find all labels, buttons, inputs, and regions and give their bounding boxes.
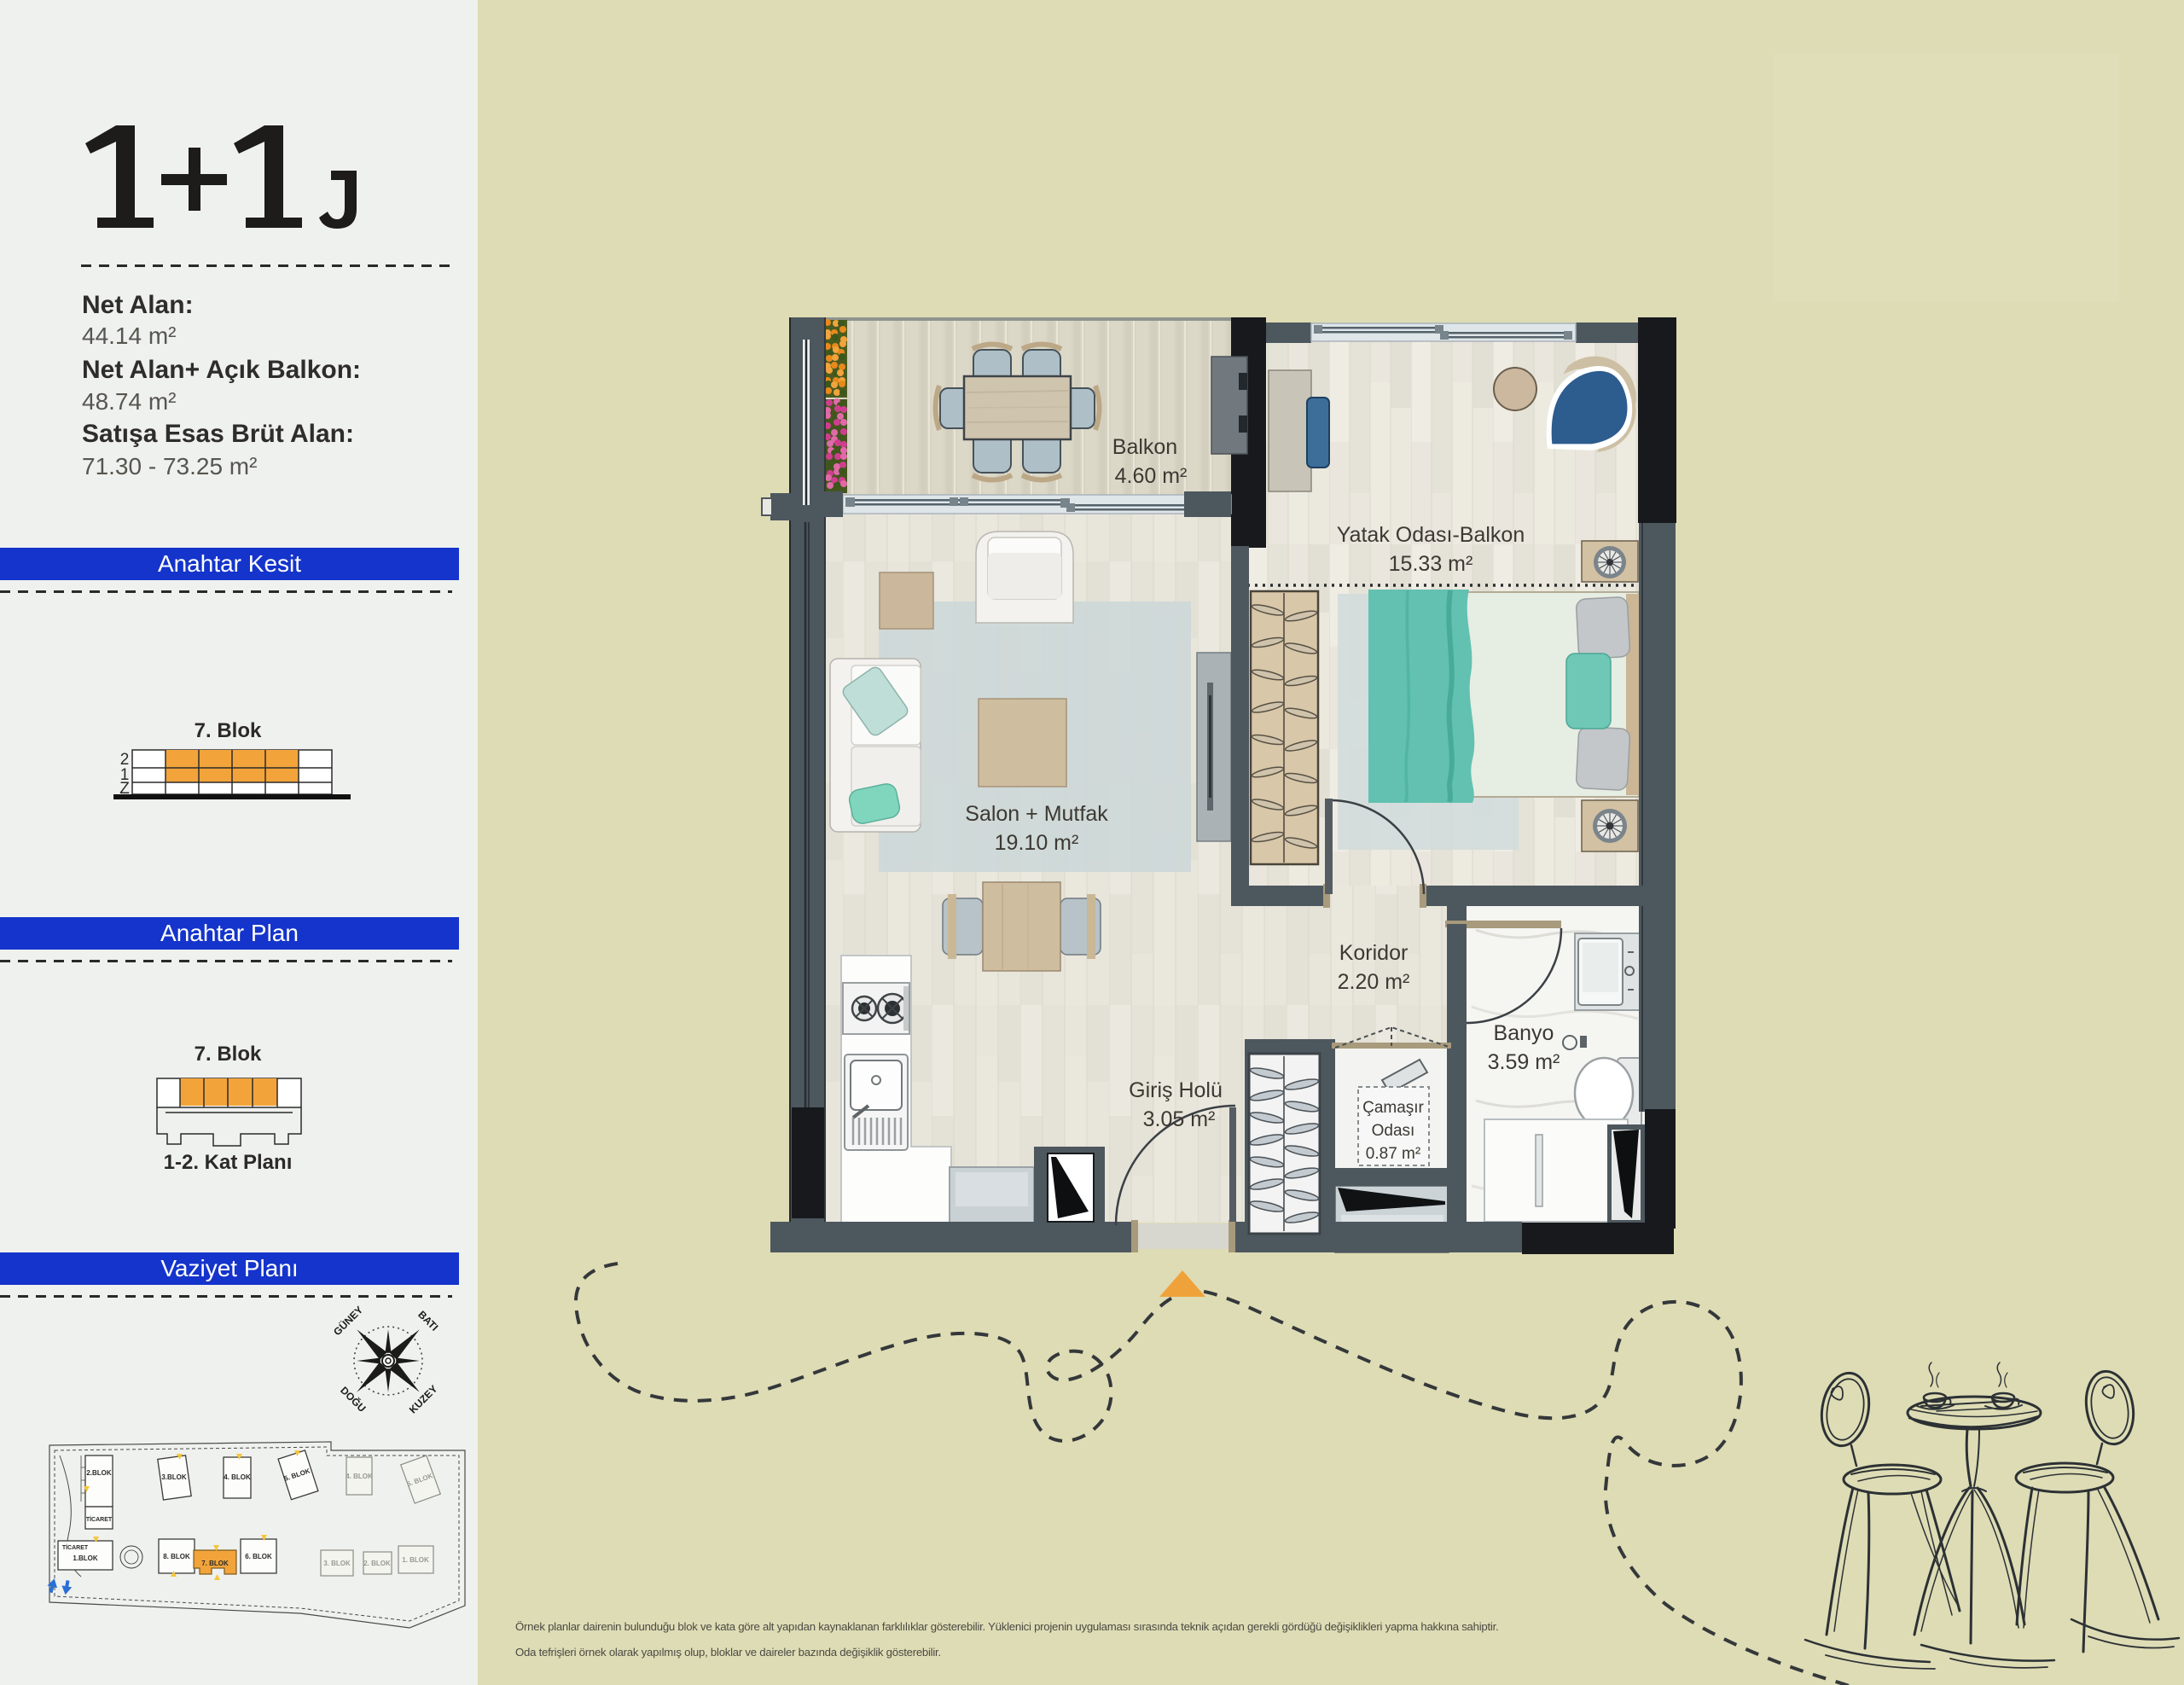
svg-text:4.60 m²: 4.60 m² <box>1115 464 1188 488</box>
svg-text:TİCARET: TİCARET <box>86 1516 113 1523</box>
svg-text:2.BLOK: 2.BLOK <box>86 1469 112 1477</box>
svg-text:Salon + Mutfak: Salon + Mutfak <box>965 802 1108 826</box>
svg-text:1. BLOK: 1. BLOK <box>402 1556 429 1564</box>
svg-text:Koridor: Koridor <box>1339 941 1409 965</box>
svg-text:19.10 m²: 19.10 m² <box>995 831 1079 855</box>
svg-text:Yatak Odası-Balkon: Yatak Odası-Balkon <box>1337 523 1525 547</box>
svg-text:Oda tefrişleri örnek olarak ya: Oda tefrişleri örnek olarak yapılmış olu… <box>515 1646 941 1659</box>
svg-text:4. BLOK: 4. BLOK <box>224 1473 251 1481</box>
svg-text:Giriş Holü: Giriş Holü <box>1129 1078 1223 1102</box>
svg-text:7. Blok: 7. Blok <box>195 719 262 742</box>
svg-text:Z: Z <box>119 780 130 798</box>
svg-text:Banyo: Banyo <box>1494 1021 1554 1045</box>
svg-text:3.59 m²: 3.59 m² <box>1488 1050 1560 1074</box>
svg-text:Örnek planlar dairenin bulundu: Örnek planlar dairenin bulunduğu blok ve… <box>515 1620 1498 1633</box>
svg-text:Çamaşır: Çamaşır <box>1362 1099 1424 1117</box>
svg-text:6. BLOK: 6. BLOK <box>245 1553 272 1560</box>
svg-text:Balkon: Balkon <box>1112 435 1177 459</box>
svg-text:4. BLOK: 4. BLOK <box>346 1473 373 1480</box>
svg-text:15.33 m²: 15.33 m² <box>1389 552 1473 576</box>
svg-text:7. Blok: 7. Blok <box>195 1043 262 1066</box>
svg-text:2. BLOK: 2. BLOK <box>363 1560 391 1567</box>
svg-text:TİCARET: TİCARET <box>62 1544 89 1551</box>
svg-text:Odası: Odası <box>1372 1122 1415 1140</box>
svg-text:2.20 m²: 2.20 m² <box>1338 970 1410 994</box>
svg-text:DOĞU: DOĞU <box>338 1384 369 1415</box>
svg-text:1.BLOK: 1.BLOK <box>73 1554 98 1562</box>
svg-text:0.87 m²: 0.87 m² <box>1366 1145 1420 1163</box>
svg-text:3.BLOK: 3.BLOK <box>161 1473 187 1481</box>
svg-text:8. BLOK: 8. BLOK <box>163 1553 190 1560</box>
svg-text:KUZEY: KUZEY <box>407 1383 440 1416</box>
svg-text:7. BLOK: 7. BLOK <box>201 1560 229 1567</box>
svg-text:3. BLOK: 3. BLOK <box>323 1560 351 1567</box>
svg-text:1-2. Kat Planı: 1-2. Kat Planı <box>164 1151 293 1173</box>
svg-text:3.05 m²: 3.05 m² <box>1143 1107 1216 1131</box>
